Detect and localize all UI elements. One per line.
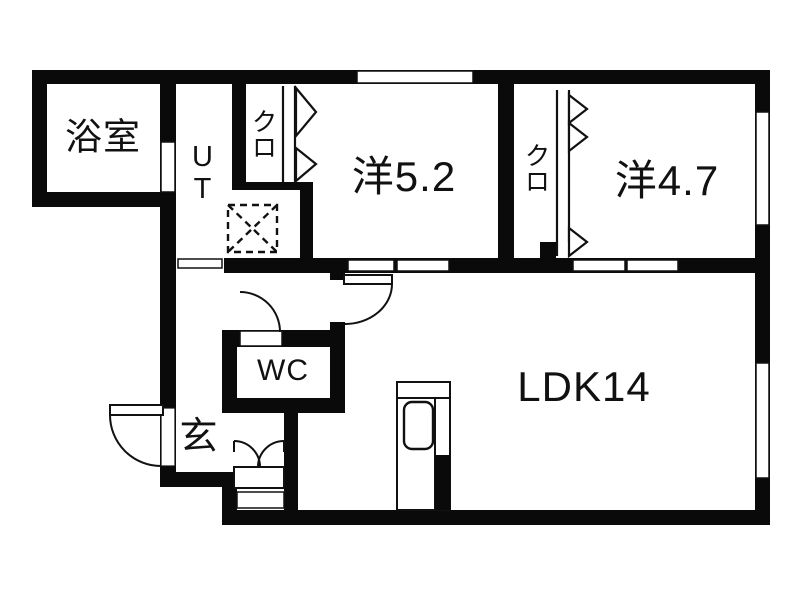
entrance-door-swing-arc — [110, 415, 161, 466]
room-label-bedroom-1: 洋5.2 — [352, 156, 456, 198]
wall-hall-ldk-upper — [330, 258, 345, 280]
closet2-bifold-triangle-1 — [569, 95, 587, 123]
ldk-door-swing-arc — [345, 284, 392, 324]
floorplan-drawing — [0, 0, 800, 600]
room-label-bathroom: 浴室 — [65, 119, 141, 156]
room-label-utility: UT — [188, 141, 217, 205]
entrance-door-gap — [161, 408, 175, 466]
wall-ut-closet1 — [232, 84, 246, 184]
sliding-door-bedroom2-a — [573, 260, 625, 271]
wall-bottom — [222, 510, 770, 525]
window-bedroom2 — [756, 112, 769, 225]
room-label-wc: WC — [257, 356, 309, 386]
closet2-bifold-triangle-2 — [569, 123, 587, 151]
porch-opening — [237, 492, 284, 508]
wall-bathroom-bottom — [32, 192, 176, 207]
ldk-door-gap — [330, 280, 345, 322]
closet2-bifold-triangle-3 — [569, 228, 587, 256]
shoe-cabinet-door-left-arc — [234, 441, 260, 467]
closet1-bifold-triangle-1 — [296, 88, 316, 136]
washing-machine-area — [228, 205, 277, 252]
kitchen-stub-wall — [435, 455, 450, 510]
sliding-door-bedroom1-b — [397, 260, 449, 271]
wall-bedroom1-bedroom2 — [498, 84, 514, 273]
kitchen-unit — [397, 382, 450, 510]
washing-machine-x1 — [228, 205, 277, 252]
window-ldk — [756, 363, 769, 478]
washing-machine-x2 — [228, 205, 277, 252]
sliding-door-bedroom1-a — [348, 260, 394, 271]
room-label-ldk: LDK14 — [517, 366, 650, 408]
bathroom-door — [161, 142, 175, 192]
wall-middle-f — [678, 258, 755, 273]
washing-machine-box — [228, 205, 277, 252]
window-top — [357, 71, 473, 83]
room-label-closet-2: クロ — [523, 142, 549, 194]
room-label-entrance: 玄 — [179, 418, 218, 456]
kitchen-sink — [404, 402, 433, 449]
wall-middle-a — [160, 258, 178, 273]
wall-middle-d — [449, 258, 572, 273]
shoe-cabinet-box — [234, 467, 284, 488]
wall-middle-b — [222, 258, 347, 273]
room-label-bedroom-2: 洋4.7 — [615, 160, 719, 202]
wc-door-swing-arc — [240, 292, 280, 332]
wall-left-bathroom — [32, 70, 47, 207]
sliding-door-bedroom2-b — [627, 260, 678, 271]
utility-passage-opening — [178, 259, 222, 268]
wall-wc-bottom — [222, 398, 345, 413]
entrance-door-leaf — [110, 405, 163, 415]
wall-entrance-ldk — [284, 413, 298, 512]
shoe-cabinet-door-right-arc — [258, 441, 284, 467]
ldk-door-leaf — [344, 275, 392, 284]
room-label-closet-1: クロ — [250, 108, 276, 160]
wc-door-leaf-closed — [240, 331, 282, 346]
floorplan-page: 浴室 UT クロ 洋5.2 クロ 洋4.7 WC 玄 LDK14 — [0, 0, 800, 600]
door-swings — [110, 275, 392, 488]
wall-entrance-bottom — [160, 472, 237, 487]
closet1-bifold-triangle-2 — [296, 148, 316, 181]
wall-porch-step — [222, 487, 237, 512]
